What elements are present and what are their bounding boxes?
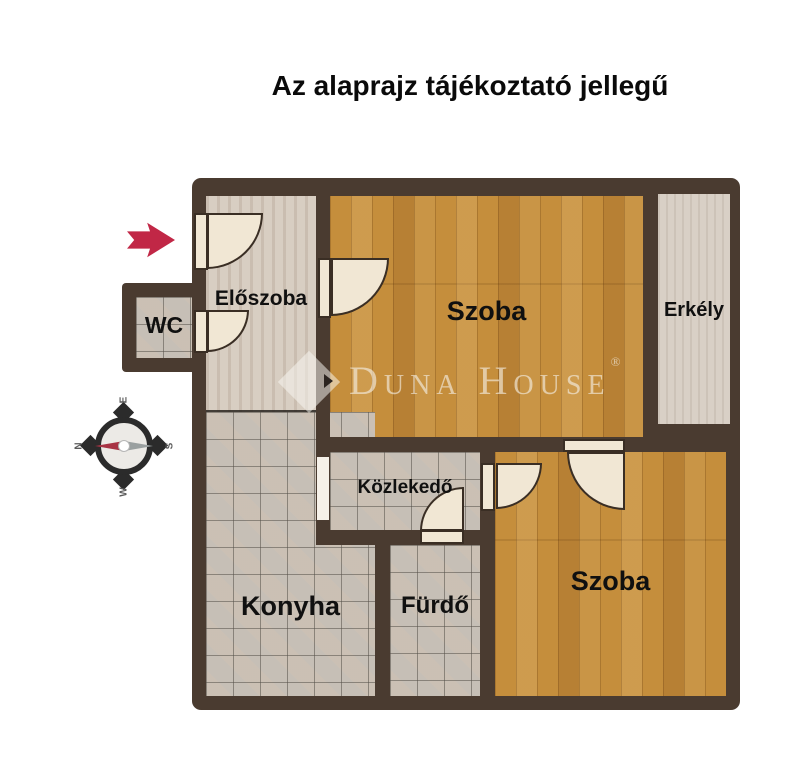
entrance-door-leaf (194, 213, 208, 270)
compass-letter-right: S (165, 443, 176, 450)
brand-name: Duna House® (349, 354, 620, 404)
kozlekedo-szoba-door-leaf (481, 463, 495, 511)
wall-kozlekedo-bottom (316, 530, 495, 545)
room-label-wc: WC (136, 313, 192, 338)
page-title: Az alaprajz tájékoztató jellegű (150, 70, 790, 102)
brand-name-text: Duna House (349, 358, 611, 403)
room-label-konyha: Konyha (206, 592, 375, 622)
furdo-door-leaf (420, 530, 464, 544)
entrance-arrow-icon (127, 222, 175, 258)
compass-letter-left: N (74, 442, 85, 449)
room-label-eloszoba: Előszoba (206, 287, 316, 310)
compass-hub (118, 440, 130, 452)
wall-szoba-divider (316, 437, 726, 452)
room-label-erkely: Erkély (652, 299, 736, 321)
compass-letter-bottom: W (119, 487, 130, 496)
szoba-szoba-door-leaf (563, 439, 625, 452)
open-passage-konyha-kozlekedo (317, 457, 329, 520)
room-label-furdo: Fürdő (390, 593, 480, 619)
room-label-kozlekedo: Közlekedő (330, 478, 480, 499)
compass-icon: E N S W (74, 396, 174, 496)
floorplan-page: Az alaprajz tájékoztató jellegű Előszoba… (0, 0, 796, 768)
room-floor-furdo (390, 545, 480, 696)
room-label-szoba-top: Szoba (330, 297, 643, 327)
room-label-szoba-bottom: Szoba (495, 567, 726, 597)
wc-door-leaf (194, 310, 208, 353)
registered-mark: ® (611, 354, 621, 369)
brand-watermark: Duna House® (283, 350, 673, 414)
compass-letter-top: E (119, 397, 130, 404)
brand-diamond-arrow-icon (324, 374, 333, 388)
